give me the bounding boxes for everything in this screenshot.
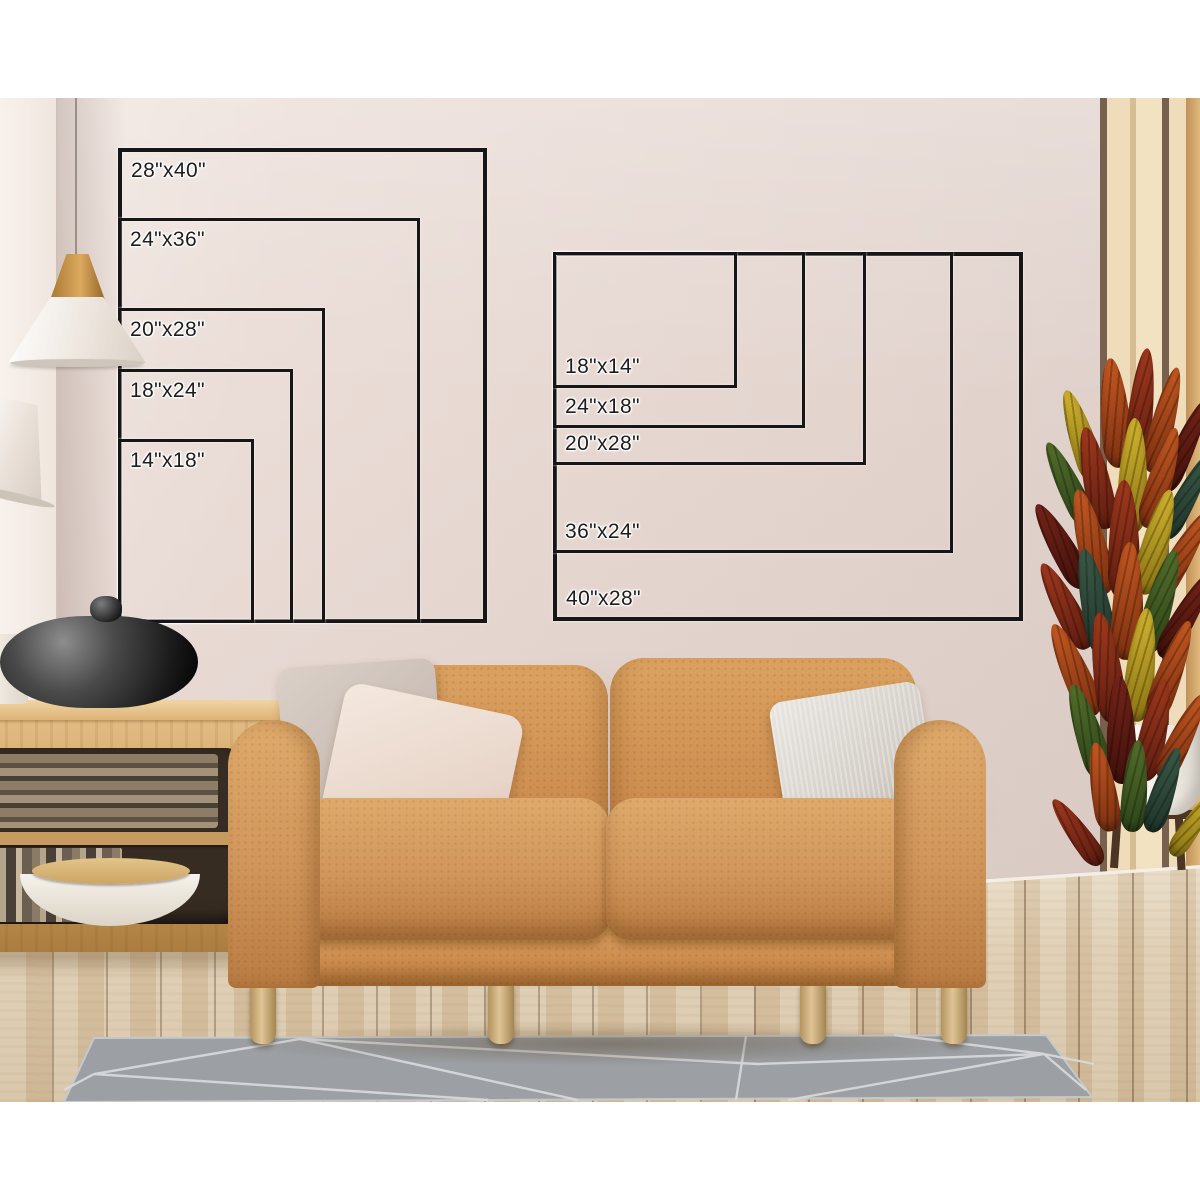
- bowl-wood-lid: [32, 858, 190, 884]
- sofa-seat-cushion-right: [606, 798, 916, 940]
- sofa-leg: [488, 982, 514, 1044]
- sofa-leg: [941, 982, 967, 1044]
- sofa-floor-shadow: [230, 1022, 990, 1066]
- sofa-leg: [800, 982, 826, 1044]
- sofa-seat-cushion-left: [298, 798, 610, 940]
- size-rect: 18"x14": [553, 252, 737, 388]
- black-vase: [0, 616, 198, 708]
- sofa-leg: [250, 982, 276, 1044]
- size-label: 20"x28": [130, 318, 205, 341]
- size-label: 36"x24": [565, 520, 640, 543]
- vase-knob: [90, 596, 122, 622]
- size-label: 18"x14": [565, 355, 640, 378]
- size-label: 20"x28": [565, 432, 640, 455]
- size-label: 24"x18": [565, 395, 640, 418]
- room-photo: 28"x40" 24"x36" 20"x28" 18"x24" 14"x18" …: [0, 98, 1200, 1102]
- sofa-arm-right: [894, 720, 986, 988]
- book-stack: [0, 754, 218, 828]
- sofa-arm-left: [228, 720, 320, 988]
- size-rect: 14"x18": [118, 439, 254, 623]
- lamp-cord: [75, 98, 77, 256]
- pendant-lamp-rim: [10, 359, 144, 367]
- size-label: 18"x24": [130, 379, 205, 402]
- size-label: 14"x18": [130, 449, 205, 472]
- size-label: 28"x40": [131, 159, 206, 182]
- size-label: 24"x36": [130, 228, 205, 251]
- size-label: 40"x28": [566, 587, 641, 610]
